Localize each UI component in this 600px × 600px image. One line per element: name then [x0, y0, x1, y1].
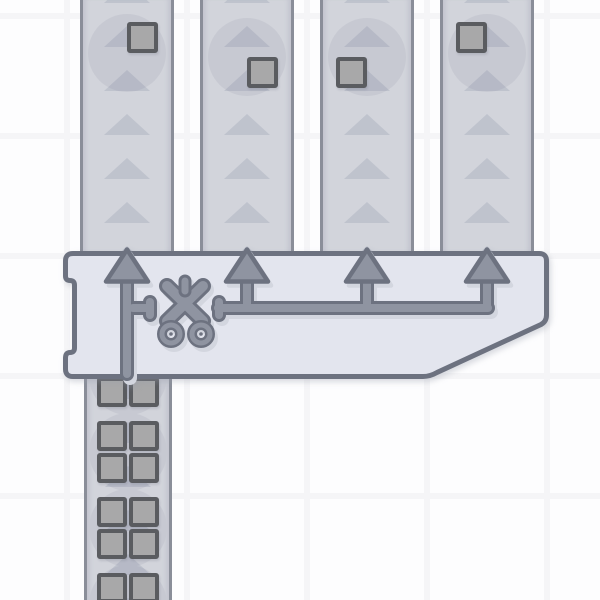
- quad-cutter-building[interactable]: [0, 0, 600, 600]
